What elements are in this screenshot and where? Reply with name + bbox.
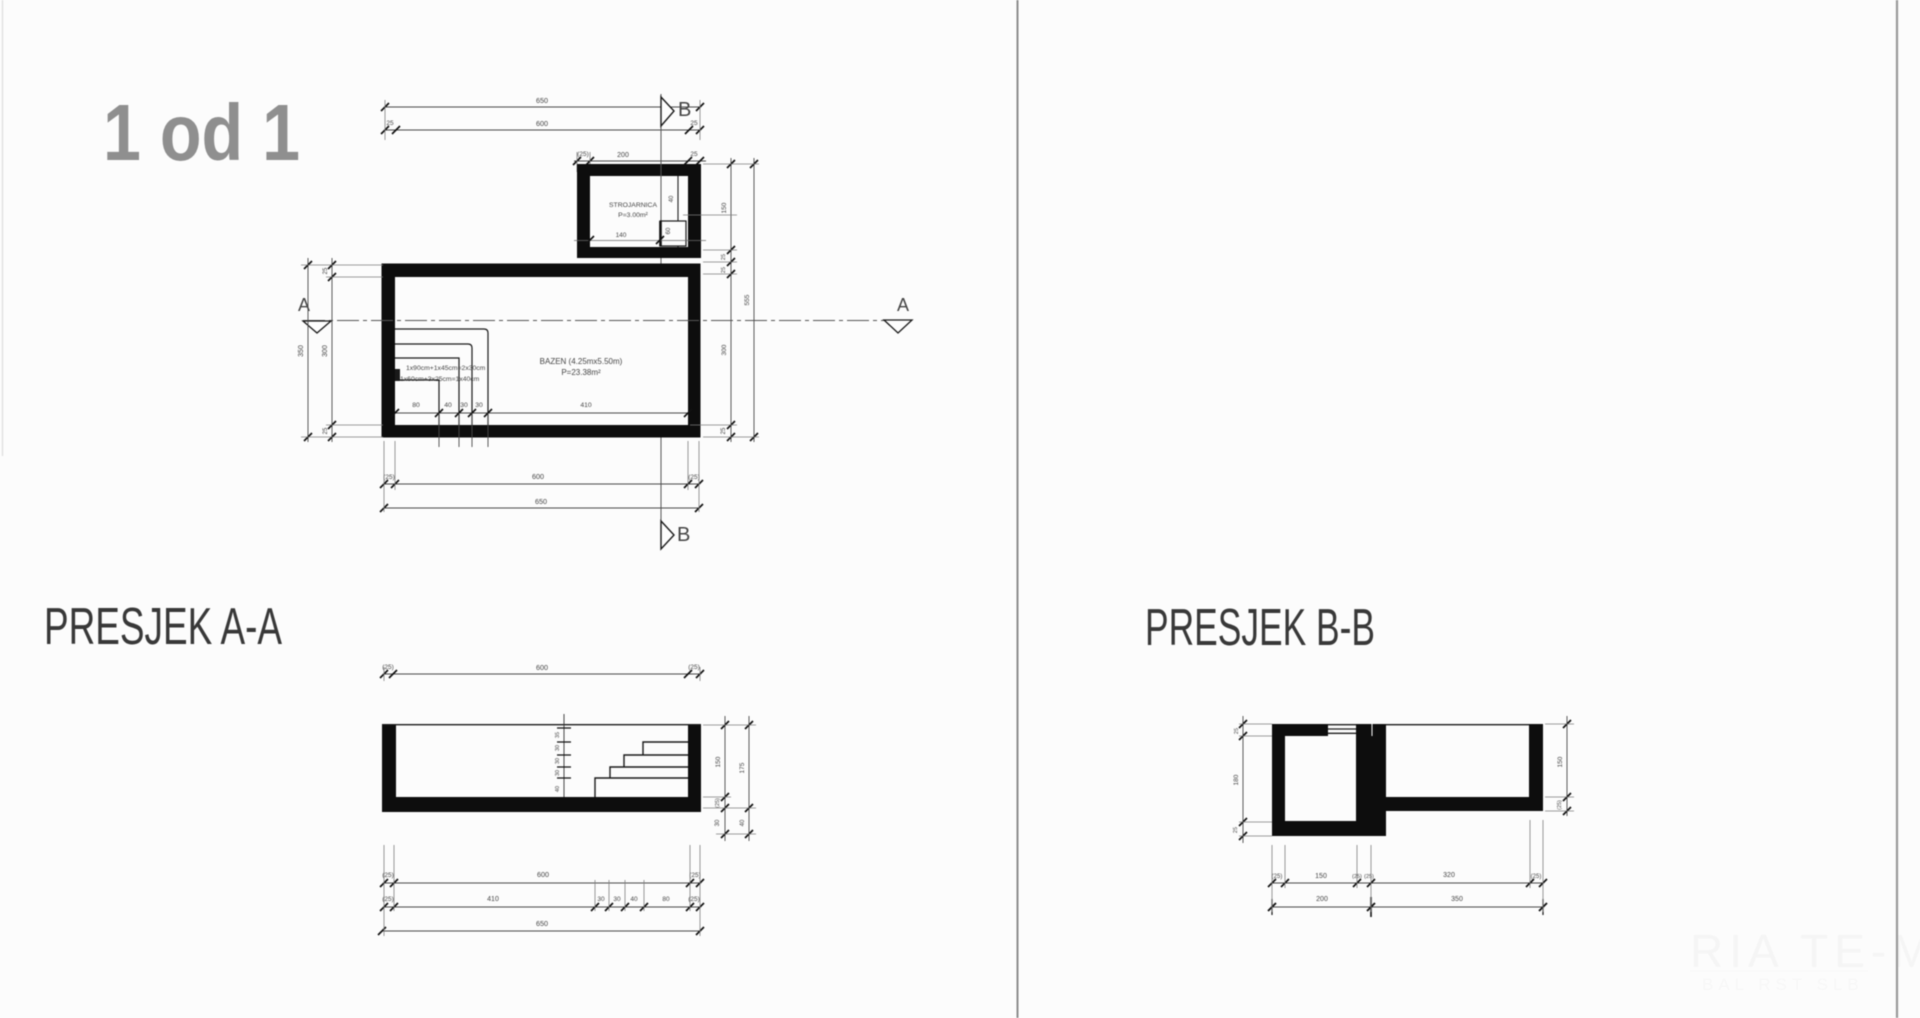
svg-text:(25): (25) [1531, 874, 1542, 880]
svg-text:30: 30 [475, 402, 483, 409]
svg-text:80: 80 [412, 402, 420, 409]
svg-text:1x90cm+1x45cm=2x30cm: 1x90cm+1x45cm=2x30cm [406, 365, 486, 372]
svg-text:35: 35 [555, 732, 561, 738]
svg-text:40: 40 [630, 896, 638, 903]
svg-text:200: 200 [1316, 896, 1328, 903]
svg-text:150: 150 [721, 202, 728, 213]
svg-text:180: 180 [1233, 774, 1240, 785]
svg-text:25: 25 [1234, 728, 1240, 734]
svg-text:650: 650 [536, 96, 548, 105]
svg-text:25: 25 [721, 267, 727, 273]
svg-text:RIA TE-M: RIA TE-M [1690, 925, 1920, 977]
svg-text:320: 320 [1443, 872, 1455, 879]
svg-text:A: A [897, 295, 909, 315]
svg-text:350: 350 [298, 345, 305, 357]
svg-text:B: B [678, 99, 691, 121]
svg-text:30: 30 [460, 402, 468, 409]
svg-text:150: 150 [1557, 756, 1564, 767]
svg-text:(25): (25) [688, 664, 700, 671]
svg-text:600: 600 [536, 663, 548, 672]
svg-text:60: 60 [666, 227, 672, 234]
svg-text:25: 25 [721, 254, 727, 260]
svg-text:600: 600 [537, 870, 549, 879]
svg-text:350: 350 [1451, 896, 1463, 903]
svg-text:410: 410 [487, 896, 499, 903]
svg-text:25: 25 [721, 427, 727, 434]
svg-text:150: 150 [715, 756, 722, 767]
svg-text:300: 300 [322, 345, 329, 357]
svg-text:25: 25 [323, 267, 329, 274]
svg-text:555: 555 [744, 294, 751, 305]
svg-text:25: 25 [1233, 827, 1239, 833]
svg-text:(25): (25) [383, 474, 395, 481]
svg-text:1 od 1: 1 od 1 [103, 88, 300, 177]
svg-text:30: 30 [597, 896, 605, 903]
svg-text:40: 40 [444, 402, 452, 409]
svg-text:40: 40 [740, 819, 746, 826]
svg-text:BAZEN (4.25mx5.50m): BAZEN (4.25mx5.50m) [540, 357, 623, 366]
svg-text:175: 175 [739, 762, 746, 773]
svg-text:200: 200 [617, 152, 629, 159]
svg-text:(25): (25) [715, 798, 721, 808]
svg-text:600: 600 [536, 119, 548, 128]
svg-text:(25): (25) [689, 872, 701, 879]
svg-text:(25): (25) [1364, 874, 1374, 880]
svg-text:30: 30 [613, 896, 621, 903]
svg-text:(25): (25) [1272, 874, 1283, 880]
svg-text:140: 140 [616, 232, 627, 239]
svg-text:410: 410 [580, 402, 592, 409]
svg-text:(25): (25) [688, 474, 700, 481]
svg-text:PRESJEK B-B: PRESJEK B-B [1145, 599, 1375, 657]
svg-text:650: 650 [536, 919, 548, 928]
svg-text:25: 25 [323, 427, 329, 434]
svg-text:PRESJEK A-A: PRESJEK A-A [44, 598, 282, 656]
svg-text:150: 150 [1315, 873, 1327, 880]
svg-text:600: 600 [532, 472, 544, 481]
svg-text:30: 30 [555, 758, 561, 764]
svg-text:P=23.38m²: P=23.38m² [561, 368, 601, 377]
svg-text:40: 40 [669, 195, 675, 202]
svg-text:30: 30 [555, 745, 561, 751]
svg-text:1x60cm+3x25cm=1x40cm: 1x60cm+3x25cm=1x40cm [400, 376, 480, 383]
svg-text:STROJARNICA: STROJARNICA [609, 202, 657, 209]
svg-text:(25): (25) [1557, 800, 1563, 810]
svg-text:80: 80 [662, 896, 670, 903]
svg-text:25: 25 [690, 151, 698, 158]
svg-text:BAL RST SLB: BAL RST SLB [1702, 975, 1864, 994]
svg-text:25: 25 [386, 120, 394, 127]
svg-text:25: 25 [690, 120, 698, 127]
svg-text:650: 650 [535, 497, 547, 506]
svg-text:40: 40 [555, 786, 561, 792]
svg-text:B: B [677, 524, 690, 546]
svg-text:P=3.00m²: P=3.00m² [618, 212, 648, 219]
svg-text:30: 30 [715, 819, 721, 826]
svg-text:300: 300 [721, 344, 728, 355]
svg-text:(25): (25) [577, 151, 589, 158]
svg-text:30: 30 [555, 770, 561, 776]
